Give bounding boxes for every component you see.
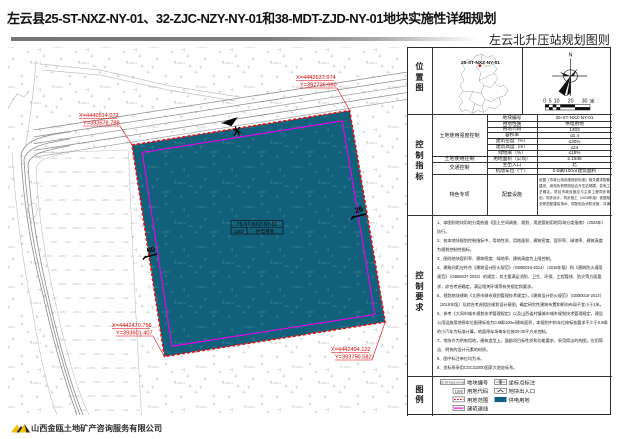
svg-text:建筑退线: 建筑退线 [467, 405, 489, 413]
svg-text:米: 米 [590, 97, 596, 105]
svg-text:1303: 1303 [234, 229, 245, 234]
svg-text:25-ST-NXZ-NY-01: 25-ST-NXZ-NY-01 [440, 381, 465, 385]
svg-text:供电用地: 供电用地 [256, 228, 275, 235]
svg-text:X=4442637.974: X=4442637.974 [296, 75, 336, 81]
svg-text:Y=393578.788: Y=393578.788 [83, 121, 120, 127]
svg-text:0: 0 [543, 99, 546, 105]
svg-text:地块编号: 地块编号 [467, 379, 488, 387]
svg-text:供电用地: 供电用地 [509, 396, 531, 404]
svg-text:X=4442614.072: X=4442614.072 [79, 113, 119, 119]
svg-text:N: N [569, 53, 573, 59]
svg-text:10: 10 [554, 99, 560, 105]
svg-text:用地范围: 用地范围 [467, 396, 488, 404]
svg-text:5: 5 [549, 99, 552, 105]
svg-text:Y=392726.660: Y=392726.660 [300, 83, 337, 89]
svg-text:25-ST-NXZ-NY-01: 25-ST-NXZ-NY-01 [237, 222, 278, 228]
svg-text:用地代码: 用地代码 [467, 387, 488, 395]
svg-text:1303: 1303 [455, 389, 463, 393]
svg-text:20: 20 [568, 99, 574, 105]
svg-text:X=4442494.122: X=4442494.122 [331, 347, 371, 353]
svg-text:X=4442470.756: X=4442470.756 [112, 323, 152, 329]
svg-text:Y=393601.407: Y=393601.407 [116, 331, 153, 337]
svg-text:坐标点标注: 坐标点标注 [509, 379, 536, 387]
svg-text:地块出入口: 地块出入口 [509, 387, 536, 395]
svg-text:25-ST-NXZ-NY-01: 25-ST-NXZ-NY-01 [461, 60, 500, 66]
svg-text:30: 30 [582, 99, 588, 105]
svg-text:Y=393750.582: Y=393750.582 [335, 355, 372, 361]
